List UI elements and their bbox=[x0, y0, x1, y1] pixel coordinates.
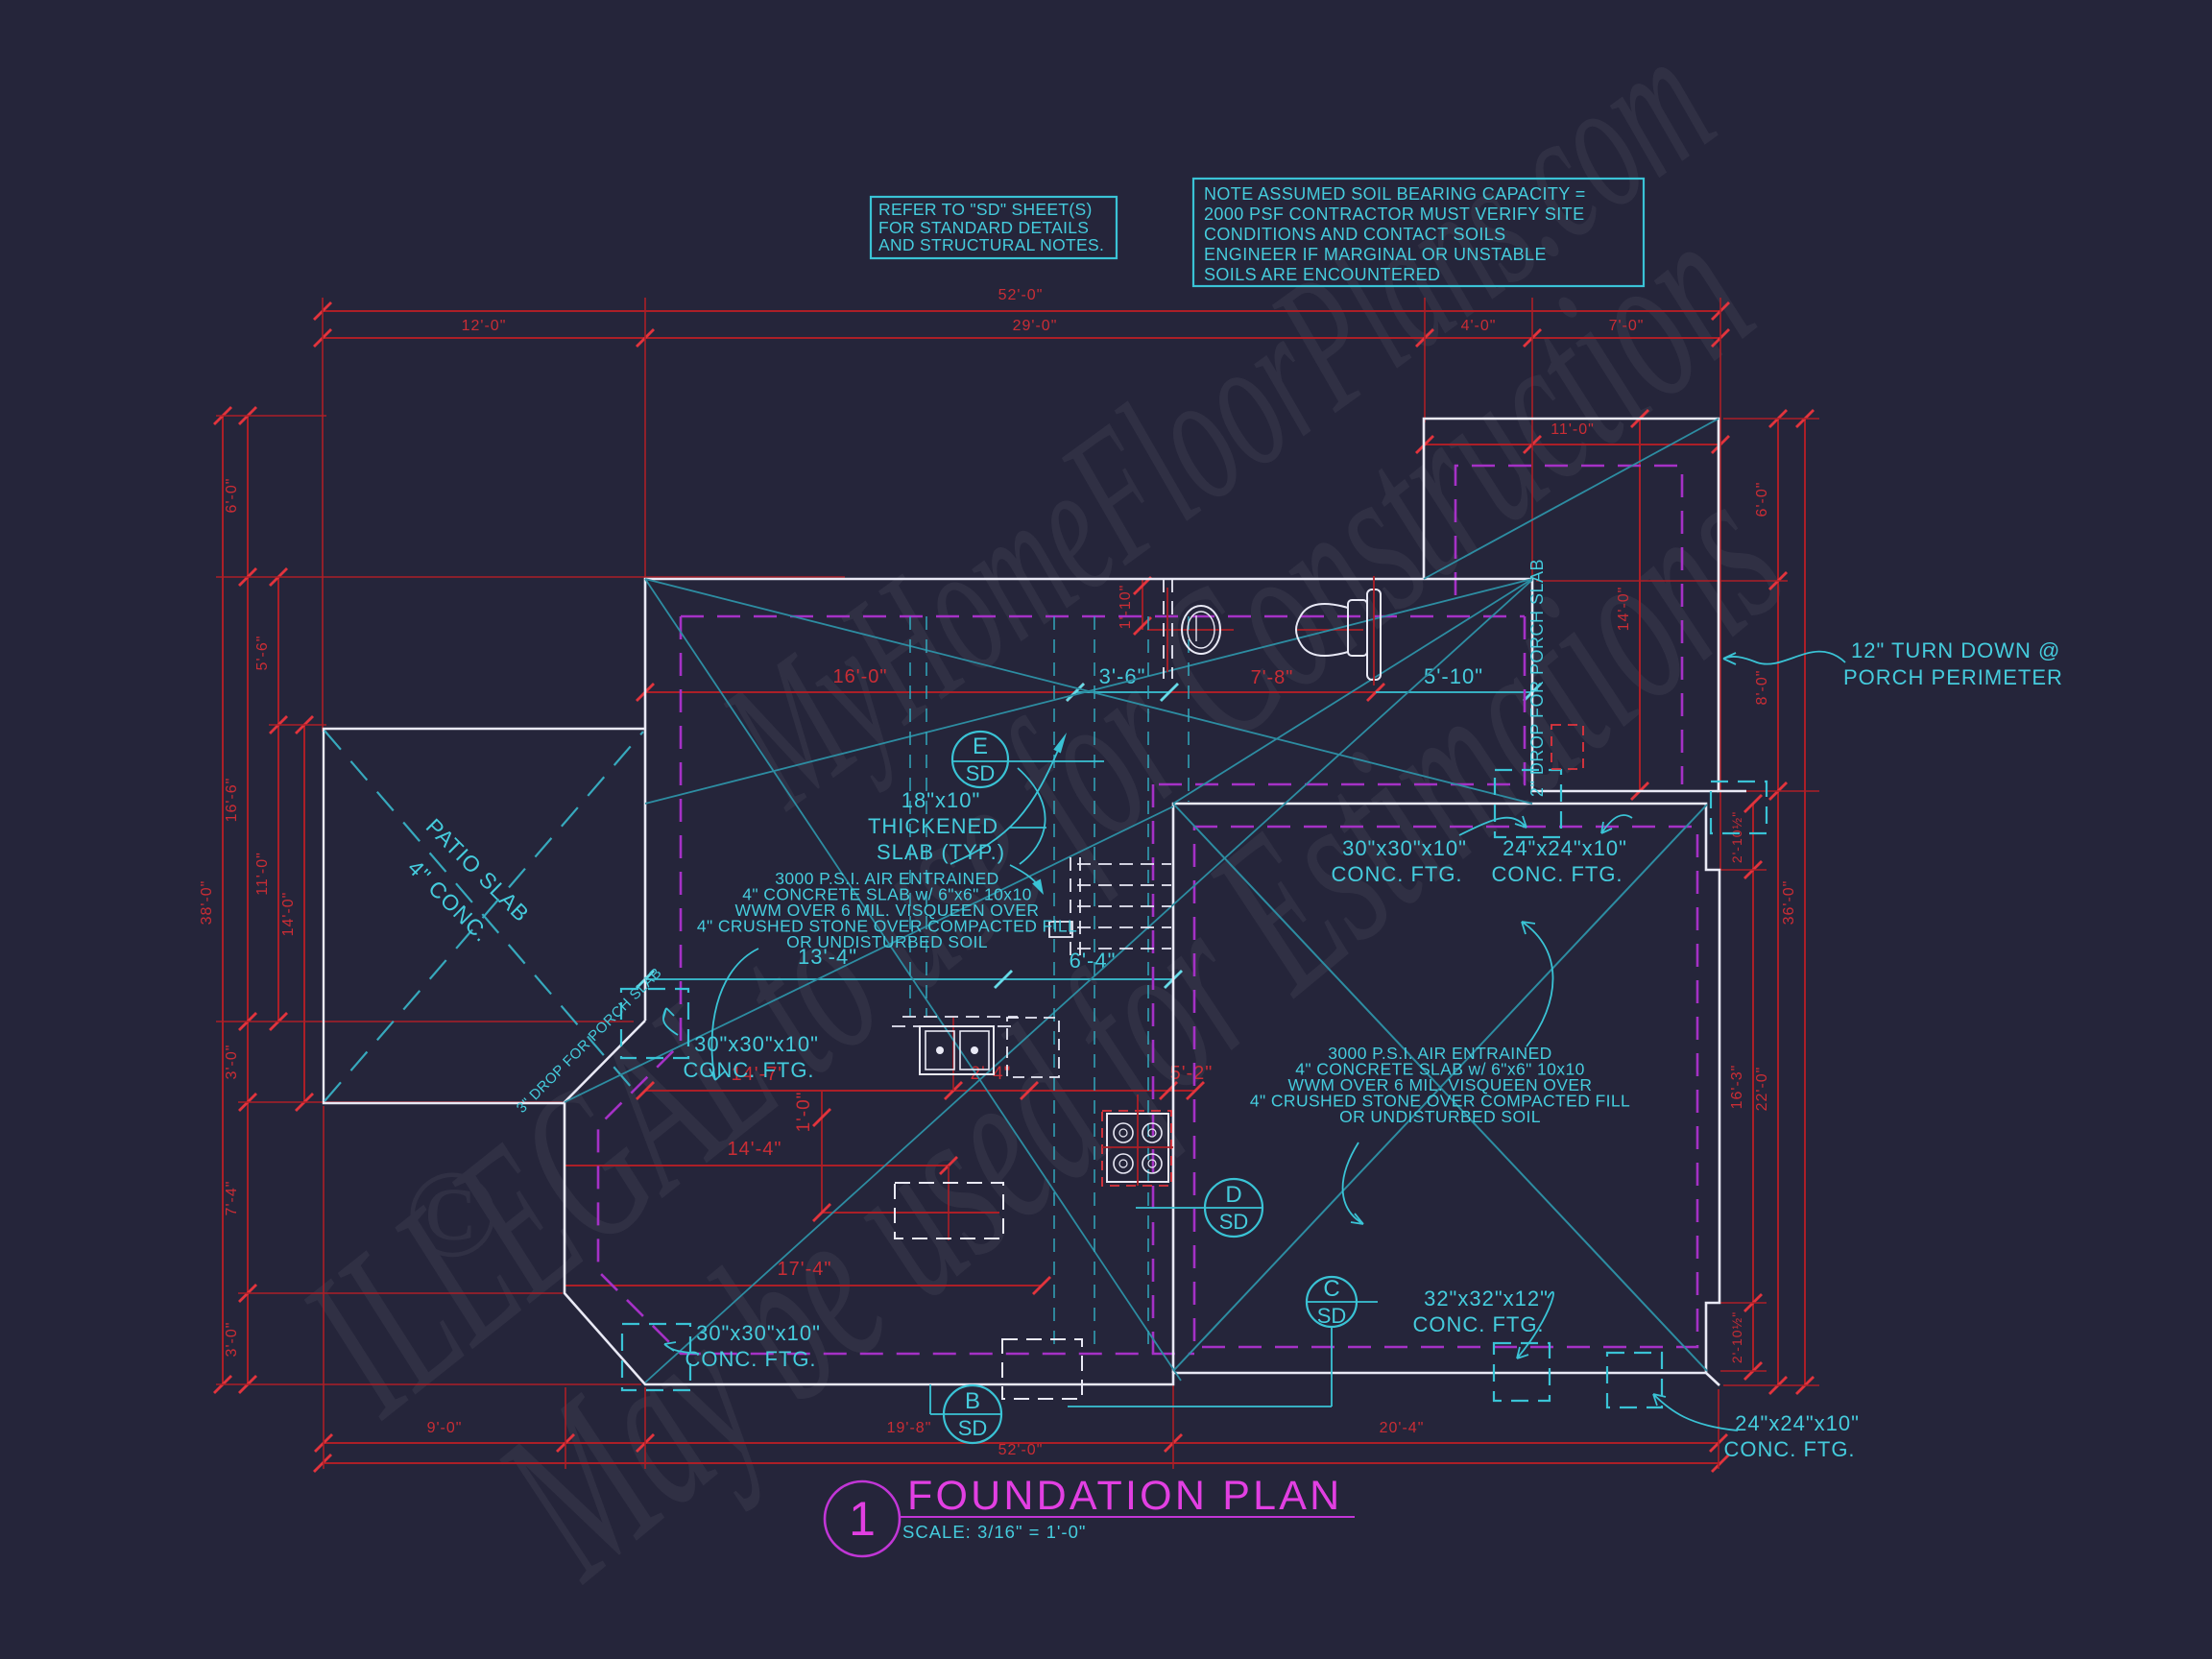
svg-text:CONDITIONS AND CONTACT SOILS: CONDITIONS AND CONTACT SOILS bbox=[1204, 225, 1506, 244]
svg-text:AND STRUCTURAL NOTES.: AND STRUCTURAL NOTES. bbox=[878, 235, 1104, 254]
svg-text:17'-4": 17'-4" bbox=[778, 1259, 832, 1280]
svg-text:6'-0": 6'-0" bbox=[224, 478, 240, 514]
svg-text:CONC. FTG.: CONC. FTG. bbox=[685, 1347, 816, 1371]
svg-text:5'-2": 5'-2" bbox=[1170, 1063, 1214, 1084]
svg-text:36'-0": 36'-0" bbox=[1781, 880, 1797, 926]
svg-text:REFER TO "SD" SHEET(S): REFER TO "SD" SHEET(S) bbox=[878, 200, 1093, 219]
svg-text:16'-3": 16'-3" bbox=[1729, 1065, 1745, 1110]
svg-text:B: B bbox=[965, 1388, 980, 1414]
svg-text:©: © bbox=[403, 1145, 498, 1284]
svg-text:D: D bbox=[1225, 1182, 1241, 1208]
svg-text:52'-0": 52'-0" bbox=[998, 287, 1044, 303]
svg-text:12'-0": 12'-0" bbox=[462, 318, 507, 334]
svg-text:CONC. FTG.: CONC. FTG. bbox=[683, 1058, 814, 1082]
svg-text:29'-0": 29'-0" bbox=[1013, 318, 1058, 334]
svg-text:6'-4": 6'-4" bbox=[1070, 949, 1117, 973]
svg-text:OR UNDISTURBED SOIL: OR UNDISTURBED SOIL bbox=[786, 932, 988, 951]
svg-text:18"x10": 18"x10" bbox=[902, 788, 981, 812]
svg-text:C: C bbox=[1323, 1276, 1339, 1302]
svg-text:3'-0": 3'-0" bbox=[224, 1322, 240, 1358]
svg-text:PORCH PERIMETER: PORCH PERIMETER bbox=[1843, 665, 2063, 689]
svg-text:5'-6": 5'-6" bbox=[254, 636, 271, 671]
svg-text:19'-8": 19'-8" bbox=[887, 1420, 932, 1436]
svg-text:52'-0": 52'-0" bbox=[998, 1442, 1044, 1458]
svg-text:11'-0": 11'-0" bbox=[254, 852, 271, 896]
svg-text:CONC. FTG.: CONC. FTG. bbox=[1491, 862, 1623, 886]
svg-text:22'-0": 22'-0" bbox=[1754, 1067, 1770, 1112]
svg-text:SCALE: 3/16" = 1'-0": SCALE: 3/16" = 1'-0" bbox=[902, 1522, 1086, 1542]
svg-text:7'-0": 7'-0" bbox=[1609, 318, 1645, 334]
svg-text:30"x30"x10": 30"x30"x10" bbox=[694, 1032, 819, 1056]
svg-text:7'-8": 7'-8" bbox=[1251, 667, 1294, 688]
svg-text:3'-6": 3'-6" bbox=[1099, 664, 1146, 688]
svg-text:4'-0": 4'-0" bbox=[1461, 318, 1497, 334]
svg-text:16'-6": 16'-6" bbox=[224, 778, 240, 823]
svg-text:2'-10½": 2'-10½" bbox=[1729, 1311, 1744, 1363]
svg-text:CONC. FTG.: CONC. FTG. bbox=[1412, 1312, 1544, 1336]
svg-text:OR UNDISTURBED SOIL: OR UNDISTURBED SOIL bbox=[1339, 1107, 1541, 1126]
svg-text:CONC. FTG.: CONC. FTG. bbox=[1723, 1437, 1855, 1461]
svg-text:5'-10": 5'-10" bbox=[1424, 664, 1483, 688]
svg-text:THICKENED: THICKENED bbox=[868, 814, 998, 838]
svg-text:2'-10½": 2'-10½" bbox=[1729, 811, 1744, 863]
svg-text:7'-4": 7'-4" bbox=[224, 1181, 240, 1216]
svg-text:14'-4": 14'-4" bbox=[728, 1139, 782, 1160]
svg-text:ENGINEER IF MARGINAL OR UNSTAB: ENGINEER IF MARGINAL OR UNSTABLE bbox=[1204, 245, 1547, 264]
svg-text:SD: SD bbox=[1317, 1304, 1347, 1328]
svg-text:1: 1 bbox=[849, 1492, 876, 1546]
svg-text:FOUNDATION PLAN: FOUNDATION PLAN bbox=[907, 1473, 1342, 1519]
svg-text:6'-0": 6'-0" bbox=[1754, 482, 1770, 517]
svg-text:SD: SD bbox=[966, 761, 996, 785]
svg-text:24"x24"x10": 24"x24"x10" bbox=[1503, 836, 1627, 860]
svg-text:38'-0": 38'-0" bbox=[199, 880, 215, 926]
svg-text:30"x30"x10": 30"x30"x10" bbox=[696, 1321, 821, 1345]
svg-text:32"x32"x12": 32"x32"x12" bbox=[1424, 1286, 1549, 1310]
svg-text:9'-0": 9'-0" bbox=[427, 1420, 463, 1436]
svg-text:30"x30"x10": 30"x30"x10" bbox=[1342, 836, 1467, 860]
svg-text:SD: SD bbox=[1219, 1210, 1249, 1234]
svg-text:12" TURN DOWN @: 12" TURN DOWN @ bbox=[1851, 638, 2060, 662]
svg-text:8'-0": 8'-0" bbox=[1754, 670, 1770, 706]
svg-text:SLAB (TYP.): SLAB (TYP.) bbox=[877, 840, 1005, 864]
svg-text:1'-10": 1'-10" bbox=[1118, 585, 1134, 630]
svg-text:SOILS ARE ENCOUNTERED: SOILS ARE ENCOUNTERED bbox=[1204, 265, 1440, 284]
svg-text:20'-4": 20'-4" bbox=[1380, 1420, 1425, 1436]
svg-text:14'-0": 14'-0" bbox=[280, 892, 297, 937]
svg-text:2000 PSF CONTRACTOR MUST VERIF: 2000 PSF CONTRACTOR MUST VERIFY SITE bbox=[1204, 204, 1585, 224]
svg-text:CONC. FTG.: CONC. FTG. bbox=[1331, 862, 1462, 886]
svg-text:14'-0": 14'-0" bbox=[1616, 587, 1632, 632]
svg-text:SD: SD bbox=[958, 1416, 988, 1440]
svg-text:3'-0": 3'-0" bbox=[224, 1045, 240, 1080]
svg-text:2" DROP FOR PORCH SLAB: 2" DROP FOR PORCH SLAB bbox=[1527, 559, 1547, 797]
svg-text:16'-0": 16'-0" bbox=[833, 666, 888, 687]
svg-text:1'-0": 1'-0" bbox=[794, 1092, 814, 1133]
svg-text:FOR STANDARD DETAILS: FOR STANDARD DETAILS bbox=[878, 218, 1089, 237]
svg-text:11'-0": 11'-0" bbox=[1551, 421, 1595, 438]
svg-text:NOTE ASSUMED SOIL BEARING CAPA: NOTE ASSUMED SOIL BEARING CAPACITY = bbox=[1204, 184, 1586, 204]
svg-text:E: E bbox=[973, 733, 988, 759]
svg-text:24"x24"x10": 24"x24"x10" bbox=[1735, 1411, 1860, 1435]
